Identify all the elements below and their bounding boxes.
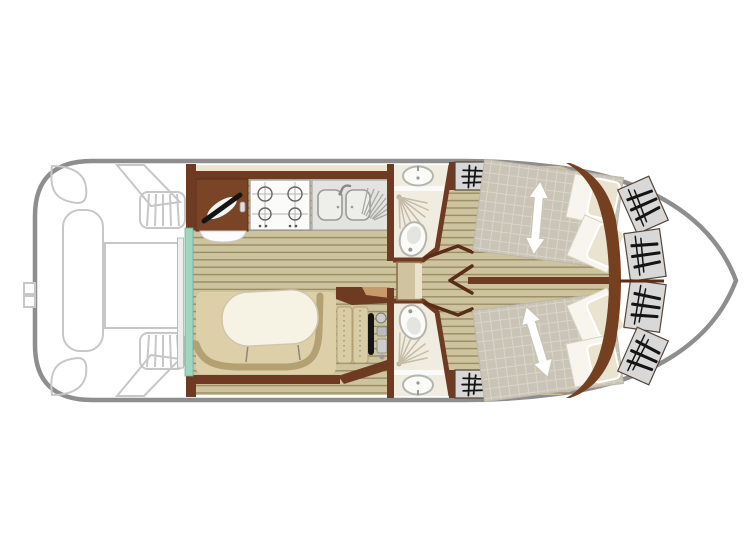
salon-table [221,289,320,348]
bathroom-wall [387,288,394,398]
double-sink [312,180,390,230]
boat-plan-svg [0,0,748,560]
aft-bulkhead [186,164,196,230]
door-track [178,238,184,368]
salon [196,289,336,374]
aft-bulkhead [186,375,196,397]
bow-hanging-lockers [618,176,669,385]
wardrobe-wall [449,162,455,190]
hanging-locker [624,229,666,282]
stern-swim-ladder [24,296,35,307]
cabin-divider-wall [468,277,620,284]
counter-shaker [240,202,245,212]
sliding-patio-door [185,228,193,376]
hanging-locker [624,280,666,333]
galley [192,165,390,242]
wardrobe-wall [449,370,455,398]
steering-wheel [368,313,374,355]
bathroom-wall [387,164,394,261]
galley-trim [192,165,388,171]
salon-bottom-wall [192,375,340,384]
galley-back-wall [192,171,388,179]
gas-stove [250,180,310,230]
stern-swim-ladder [24,283,35,294]
floor-plan-image [0,0,748,560]
